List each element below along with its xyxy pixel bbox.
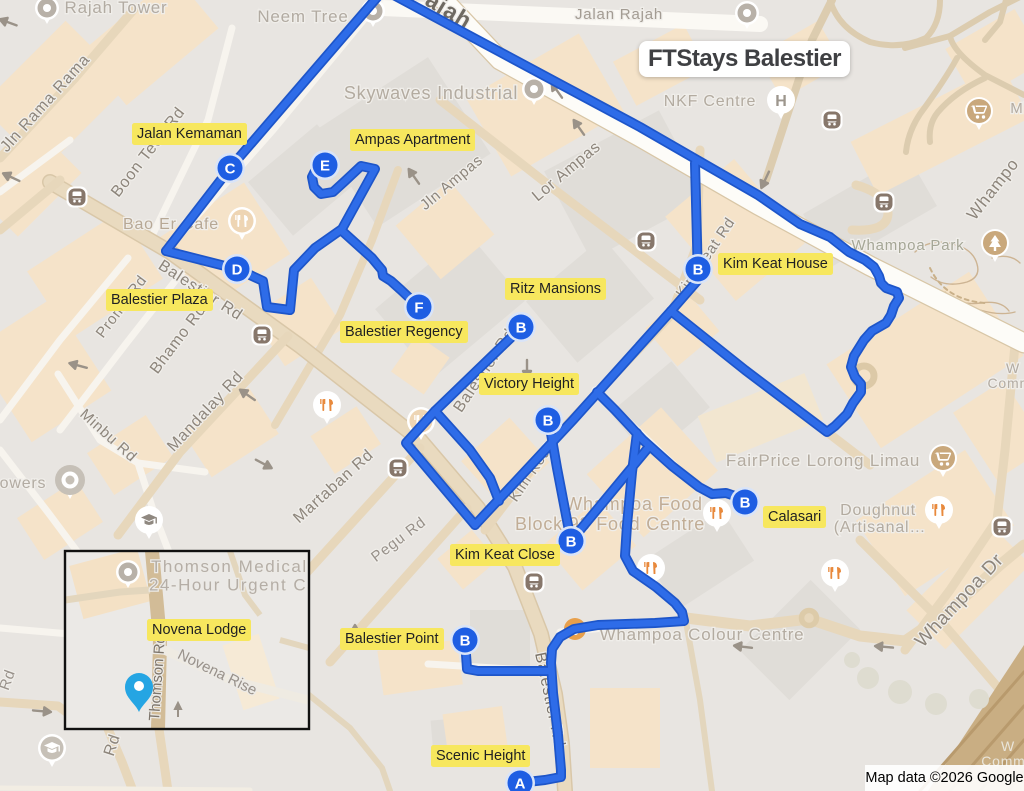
svg-text:Whampoa Park: Whampoa Park (852, 237, 965, 254)
svg-text:B: B (693, 261, 704, 278)
svg-text:C: C (225, 160, 236, 177)
svg-text:owers: owers (0, 475, 46, 492)
svg-text:Neem Tree: Neem Tree (257, 7, 348, 26)
svg-text:NKF Centre: NKF Centre (664, 93, 756, 110)
svg-text:D: D (232, 261, 243, 278)
svg-text:B: B (566, 533, 577, 550)
svg-text:B: B (740, 494, 751, 511)
svg-text:W: W (1001, 738, 1015, 754)
svg-text:Thomson Medical: Thomson Medical (151, 557, 308, 576)
svg-text:B: B (516, 319, 527, 336)
svg-text:Bao Er Cafe: Bao Er Cafe (123, 216, 219, 233)
svg-text:B: B (543, 412, 554, 429)
svg-text:Skywaves Industrial: Skywaves Industrial (344, 83, 518, 103)
svg-text:FairPrice Lorong Limau: FairPrice Lorong Limau (726, 451, 920, 470)
svg-text:H: H (775, 93, 787, 110)
svg-text:F: F (414, 299, 423, 316)
svg-text:Commu: Commu (987, 375, 1024, 391)
svg-text:W: W (1006, 360, 1020, 376)
svg-text:A: A (515, 775, 526, 791)
svg-text:Doughnut: Doughnut (840, 502, 916, 519)
svg-text:Mi: Mi (1010, 100, 1024, 117)
svg-text:Jalan Rajah: Jalan Rajah (575, 6, 663, 23)
svg-text:(Artisanal…: (Artisanal… (834, 519, 926, 536)
svg-text:Block 93 Food Centre: Block 93 Food Centre (515, 514, 705, 534)
svg-text:Rajah Tower: Rajah Tower (65, 0, 168, 17)
svg-text:24-Hour Urgent Ca: 24-Hour Urgent Ca (149, 576, 318, 595)
svg-text:B: B (460, 632, 471, 649)
svg-text:E: E (320, 157, 330, 174)
